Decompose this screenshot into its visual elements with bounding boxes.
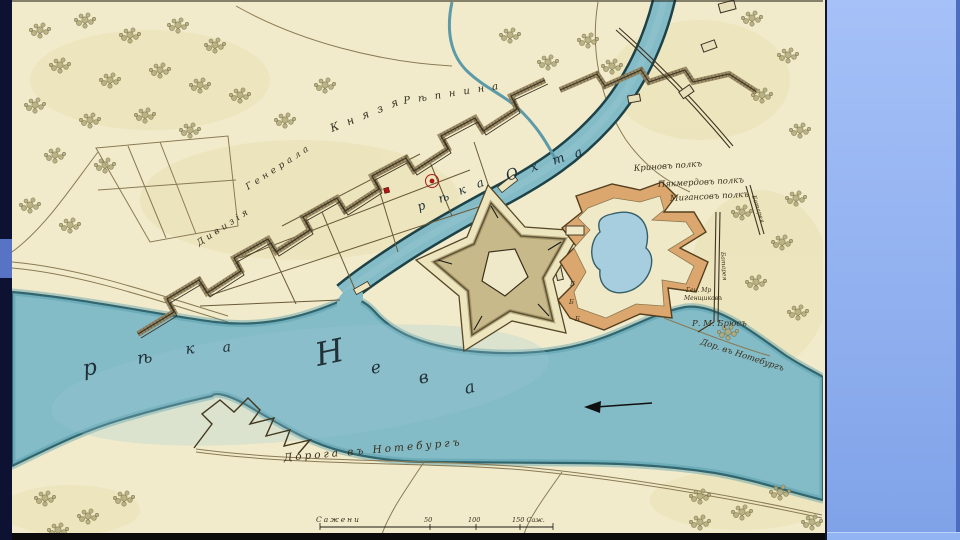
historical-map-nyenschantz: р ѣ к а Н е в а р ѣ к а О х т а [0,0,960,540]
left-accent-square [0,239,12,278]
label-commander-line1: Ген. Мр [685,287,711,294]
scale-tick: 100 [468,516,480,524]
scale-tick: 50 [424,516,432,524]
left-sidebar-strip [0,0,12,540]
map-top-border [12,0,823,2]
right-edge-stripe [956,0,960,540]
neva-letter: к [185,339,196,358]
map-bottom-border [12,533,825,540]
slide: р ѣ к а Н е в а р ѣ к а О х т а [0,0,960,540]
letter-marker: Б [568,298,574,306]
letter-marker: Б [569,280,575,288]
neva-letter: ѣ [136,347,154,369]
right-background-panel [825,0,960,540]
label-commander-line2: Менщиковъ [683,295,722,302]
scale-label: Сажени [316,515,361,524]
label-bruce: Р. М. Брюсъ [691,319,747,329]
letter-marker: Б [574,315,580,323]
pond [592,212,652,293]
right-footer-band [827,532,960,540]
scale-tick: 150 Саж. [512,516,545,524]
neva-letter: а [222,339,232,356]
